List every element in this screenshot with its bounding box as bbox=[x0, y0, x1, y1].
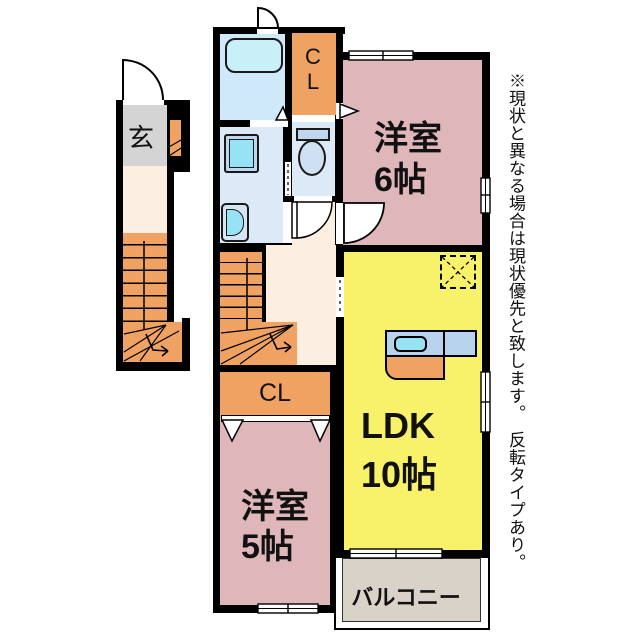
label-ldk-size: 10帖 bbox=[361, 446, 437, 498]
stairs-left-winder-lines bbox=[124, 325, 179, 361]
window-room6-right bbox=[481, 178, 490, 213]
closet-mid-door-marker-left bbox=[222, 420, 243, 441]
room6-door-arc bbox=[344, 203, 384, 243]
closet-mid-door-marker-right bbox=[311, 420, 330, 441]
label-closet-top: CL bbox=[303, 44, 323, 94]
stairs-main-winder-lines bbox=[221, 325, 293, 364]
closet-top-door-marker bbox=[340, 104, 358, 118]
label-ldk-name: LDK bbox=[361, 405, 435, 447]
toilet-door-leaf bbox=[292, 202, 297, 238]
floor-plan-canvas: 玄 CL CL 洋室 6帖 洋室 5帖 LDK 10帖 バルコニー ※現状と異な… bbox=[0, 0, 640, 640]
top-door-arc bbox=[258, 8, 278, 28]
note-text: ※現状と異なる場合は現状優先と致します。 反転タイプあり。 bbox=[503, 72, 528, 572]
bathroom-door-marker bbox=[276, 107, 288, 120]
shoe-cabinet-lines bbox=[169, 140, 181, 156]
label-room5-size: 5帖 bbox=[241, 519, 294, 568]
label-room6-size: 6帖 bbox=[374, 152, 427, 201]
genkan-door-arc bbox=[123, 60, 163, 100]
window-ldk-right bbox=[481, 372, 490, 432]
plan-annotations bbox=[0, 0, 640, 640]
window-room6-top bbox=[349, 51, 413, 60]
label-balcony: バルコニー bbox=[350, 580, 462, 612]
window-ldk-balcony bbox=[350, 549, 442, 558]
label-closet-mid: CL bbox=[220, 379, 330, 408]
label-genkan: 玄 bbox=[128, 118, 154, 155]
toilet-door-arc bbox=[296, 202, 332, 238]
window-room5-bottom bbox=[258, 604, 318, 613]
